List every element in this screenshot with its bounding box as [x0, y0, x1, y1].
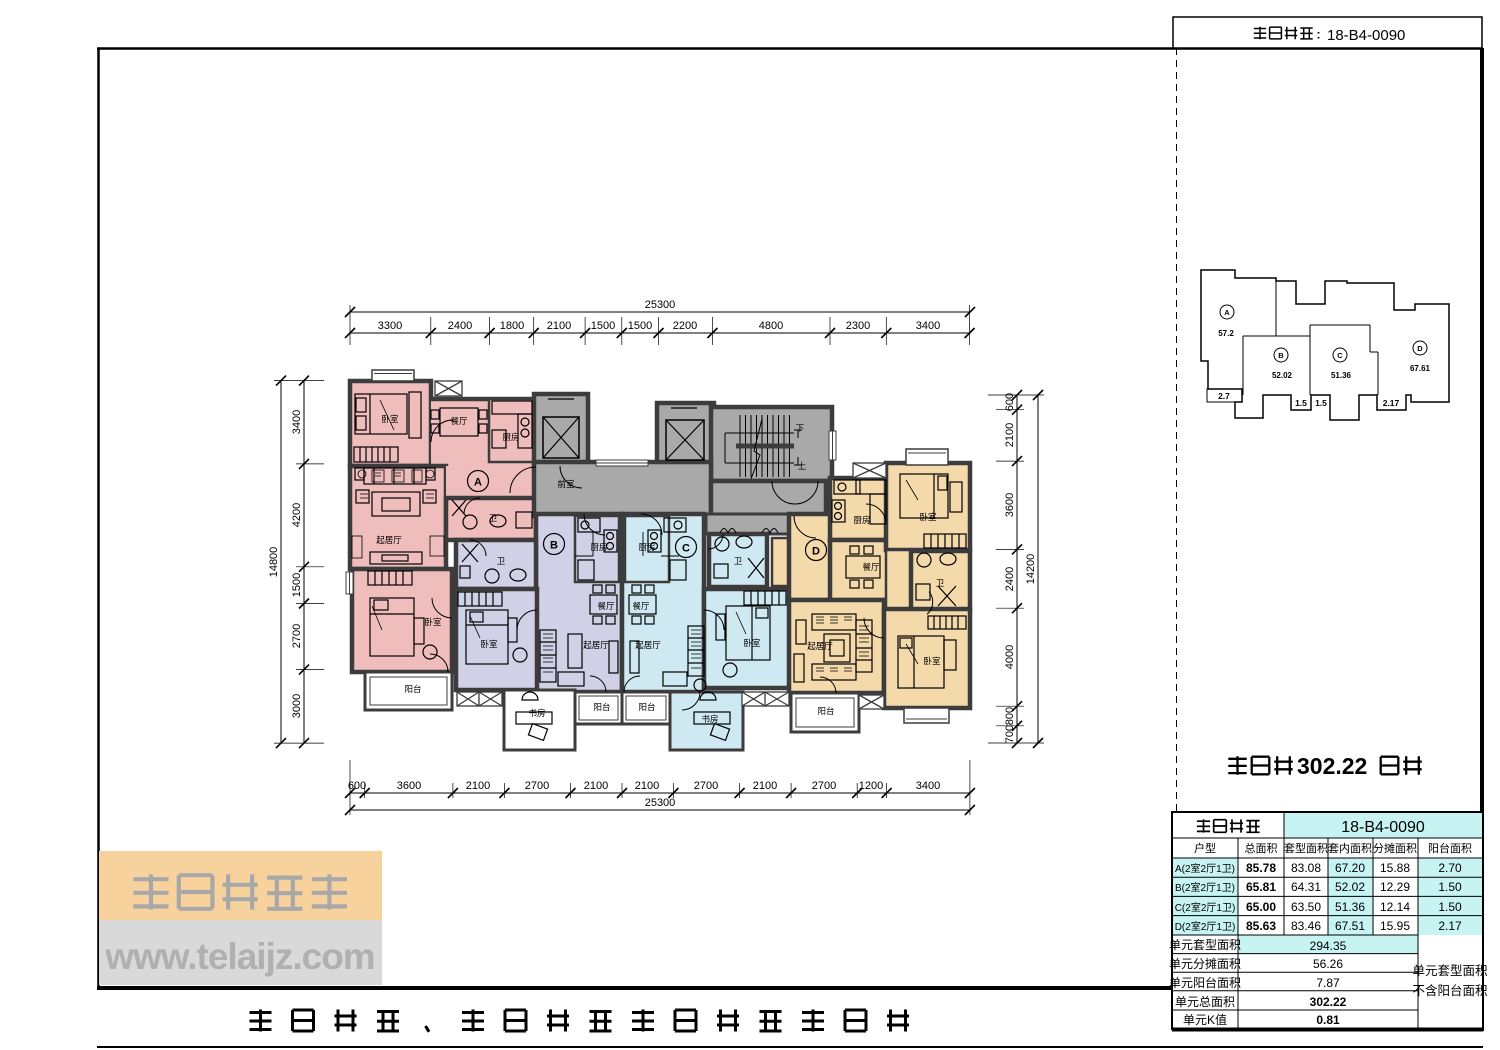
- svg-text:25300: 25300: [645, 299, 676, 311]
- svg-text:1.50: 1.50: [1438, 900, 1462, 914]
- svg-text:2.70: 2.70: [1438, 861, 1462, 875]
- svg-text:1.5: 1.5: [1295, 398, 1307, 408]
- svg-text:4000: 4000: [1004, 645, 1016, 669]
- svg-text:64.31: 64.31: [1291, 880, 1321, 894]
- svg-text:67.51: 67.51: [1335, 919, 1365, 933]
- svg-text:单元套型面积: 单元套型面积: [1169, 938, 1241, 952]
- svg-text:卧室: 卧室: [919, 512, 937, 522]
- svg-text:83.46: 83.46: [1291, 919, 1321, 933]
- svg-text:85.78: 85.78: [1246, 861, 1276, 875]
- svg-text:1500: 1500: [628, 320, 652, 332]
- svg-text:C: C: [1337, 351, 1343, 360]
- svg-text:单元套型面积: 单元套型面积: [1412, 963, 1487, 978]
- svg-text:前室: 前室: [557, 479, 575, 489]
- svg-text:63.50: 63.50: [1291, 900, 1321, 914]
- svg-text:卫: 卫: [489, 513, 498, 523]
- svg-text:12.14: 12.14: [1380, 900, 1410, 914]
- svg-text:2100: 2100: [753, 780, 777, 792]
- svg-text:85.63: 85.63: [1246, 919, 1276, 933]
- svg-text:65.00: 65.00: [1246, 900, 1276, 914]
- svg-text:51.36: 51.36: [1335, 900, 1365, 914]
- svg-text:餐厅: 餐厅: [597, 601, 615, 611]
- svg-text:卧室: 卧室: [424, 617, 442, 627]
- svg-text:卫: 卫: [734, 556, 743, 566]
- svg-text:51.36: 51.36: [1331, 371, 1352, 380]
- svg-text:D(2室2厅1卫): D(2室2厅1卫): [1175, 920, 1236, 933]
- svg-text:A(2室2厅1卫): A(2室2厅1卫): [1175, 862, 1235, 875]
- svg-text:52.02: 52.02: [1335, 880, 1365, 894]
- svg-text:83.08: 83.08: [1291, 861, 1321, 875]
- svg-text:2700: 2700: [291, 624, 303, 648]
- svg-text:14200: 14200: [1025, 554, 1037, 585]
- svg-text:2100: 2100: [547, 320, 571, 332]
- svg-text:1200: 1200: [859, 780, 883, 792]
- svg-text:D: D: [812, 546, 820, 558]
- svg-text:单元总面积: 单元总面积: [1175, 995, 1235, 1009]
- svg-text:57.2: 57.2: [1218, 329, 1234, 338]
- svg-text:3600: 3600: [397, 780, 421, 792]
- svg-text:阳台面积: 阳台面积: [1428, 841, 1472, 855]
- svg-text:15.95: 15.95: [1380, 919, 1410, 933]
- svg-text:不含阳台面积: 不含阳台面积: [1412, 983, 1487, 998]
- svg-text:单元阳台面积: 单元阳台面积: [1169, 975, 1241, 990]
- svg-text:餐厅: 餐厅: [632, 601, 650, 611]
- svg-text:14800: 14800: [268, 547, 280, 578]
- svg-text:25300: 25300: [645, 797, 676, 809]
- svg-text:C: C: [682, 543, 690, 555]
- svg-text:2300: 2300: [846, 320, 870, 332]
- svg-text:15.88: 15.88: [1380, 861, 1410, 875]
- svg-text:B: B: [1278, 351, 1284, 360]
- svg-text:67.20: 67.20: [1335, 861, 1365, 875]
- svg-text:D: D: [1417, 344, 1423, 353]
- svg-text:2.17: 2.17: [1438, 919, 1462, 933]
- svg-text:餐厅: 餐厅: [862, 562, 880, 572]
- svg-text:18-B4-0090: 18-B4-0090: [1341, 819, 1425, 836]
- svg-text:56.26: 56.26: [1313, 957, 1343, 971]
- svg-text:4200: 4200: [291, 503, 303, 527]
- svg-text:3600: 3600: [1004, 493, 1016, 517]
- svg-text:2100: 2100: [466, 780, 490, 792]
- svg-text:起居厅: 起居厅: [635, 640, 661, 650]
- svg-text:卧室: 卧室: [381, 414, 399, 424]
- svg-text:7.87: 7.87: [1316, 976, 1340, 990]
- svg-text:卫: 卫: [936, 578, 945, 588]
- svg-text:阳台: 阳台: [817, 706, 834, 716]
- svg-text:3400: 3400: [291, 410, 303, 434]
- svg-text:2100: 2100: [635, 780, 659, 792]
- svg-text:厨房: 厨房: [590, 542, 607, 552]
- svg-text:厨房: 厨房: [502, 432, 519, 442]
- svg-text:起居厅: 起居厅: [807, 641, 833, 651]
- svg-text:700: 700: [1004, 725, 1016, 743]
- svg-text:起居厅: 起居厅: [376, 535, 402, 545]
- svg-text:2700: 2700: [812, 780, 836, 792]
- svg-text:阳台: 阳台: [404, 684, 421, 694]
- svg-text:B(2室2厅1卫): B(2室2厅1卫): [1175, 881, 1235, 894]
- svg-text:2.7: 2.7: [1218, 391, 1230, 401]
- svg-text:294.35: 294.35: [1310, 939, 1347, 953]
- svg-text:下: 下: [796, 423, 805, 433]
- svg-text:上: 上: [798, 461, 807, 471]
- svg-text:厨房: 厨房: [638, 542, 655, 552]
- svg-text:600: 600: [1004, 393, 1016, 411]
- svg-text:1.5: 1.5: [1315, 398, 1327, 408]
- svg-text:2700: 2700: [694, 780, 718, 792]
- svg-text:3300: 3300: [378, 320, 402, 332]
- svg-text:302.22: 302.22: [1310, 995, 1347, 1009]
- svg-text:单元分摊面积: 单元分摊面积: [1169, 957, 1241, 971]
- svg-text:2100: 2100: [584, 780, 608, 792]
- svg-text:800: 800: [1004, 707, 1016, 725]
- svg-text:卧室: 卧室: [480, 639, 498, 649]
- svg-text:600: 600: [348, 780, 366, 792]
- svg-text:厨房: 厨房: [853, 515, 870, 525]
- svg-text:餐厅: 餐厅: [450, 416, 468, 426]
- svg-text:1.50: 1.50: [1438, 880, 1462, 894]
- svg-text:单元K值: 单元K值: [1183, 1012, 1227, 1027]
- svg-text:18-B4-0090: 18-B4-0090: [1327, 27, 1405, 44]
- svg-text:B: B: [550, 540, 558, 552]
- svg-text:起居厅: 起居厅: [583, 640, 609, 650]
- svg-text:分摊面积: 分摊面积: [1373, 841, 1417, 855]
- svg-text:www.telaijz.com: www.telaijz.com: [104, 936, 374, 977]
- svg-text:阳台: 阳台: [593, 702, 610, 712]
- svg-text:2700: 2700: [525, 780, 549, 792]
- svg-text:总面积: 总面积: [1245, 841, 1278, 855]
- svg-text:书房: 书房: [701, 714, 718, 724]
- svg-text:套型面积: 套型面积: [1284, 841, 1328, 855]
- svg-text:C(2室2厅1卫): C(2室2厅1卫): [1175, 901, 1236, 914]
- svg-text:2.17: 2.17: [1383, 398, 1400, 408]
- svg-text:67.61: 67.61: [1410, 364, 1431, 373]
- svg-text:户型: 户型: [1194, 841, 1216, 855]
- svg-text:1500: 1500: [591, 320, 615, 332]
- svg-text:1500: 1500: [291, 573, 303, 597]
- svg-text:卧室: 卧室: [923, 656, 941, 666]
- svg-text:3400: 3400: [916, 320, 940, 332]
- svg-text:302.22: 302.22: [1297, 753, 1367, 779]
- svg-text:4800: 4800: [759, 320, 783, 332]
- svg-text:书房: 书房: [528, 708, 545, 718]
- svg-text:A: A: [1224, 308, 1230, 317]
- svg-text:2100: 2100: [1004, 423, 1016, 447]
- svg-text:52.02: 52.02: [1272, 371, 1293, 380]
- svg-text:A: A: [474, 477, 482, 489]
- svg-text:套内面积: 套内面积: [1328, 841, 1372, 855]
- svg-text:3000: 3000: [291, 694, 303, 718]
- svg-text:2200: 2200: [673, 320, 697, 332]
- svg-text:卫: 卫: [497, 556, 506, 566]
- svg-text:阳台: 阳台: [638, 702, 655, 712]
- svg-text:卧室: 卧室: [743, 638, 761, 648]
- svg-text:0.81: 0.81: [1316, 1013, 1340, 1027]
- svg-text:1800: 1800: [500, 320, 524, 332]
- svg-text:2400: 2400: [1004, 567, 1016, 591]
- svg-text:2400: 2400: [448, 320, 472, 332]
- svg-text:3400: 3400: [916, 780, 940, 792]
- svg-text:12.29: 12.29: [1380, 880, 1410, 894]
- svg-text:65.81: 65.81: [1246, 880, 1276, 894]
